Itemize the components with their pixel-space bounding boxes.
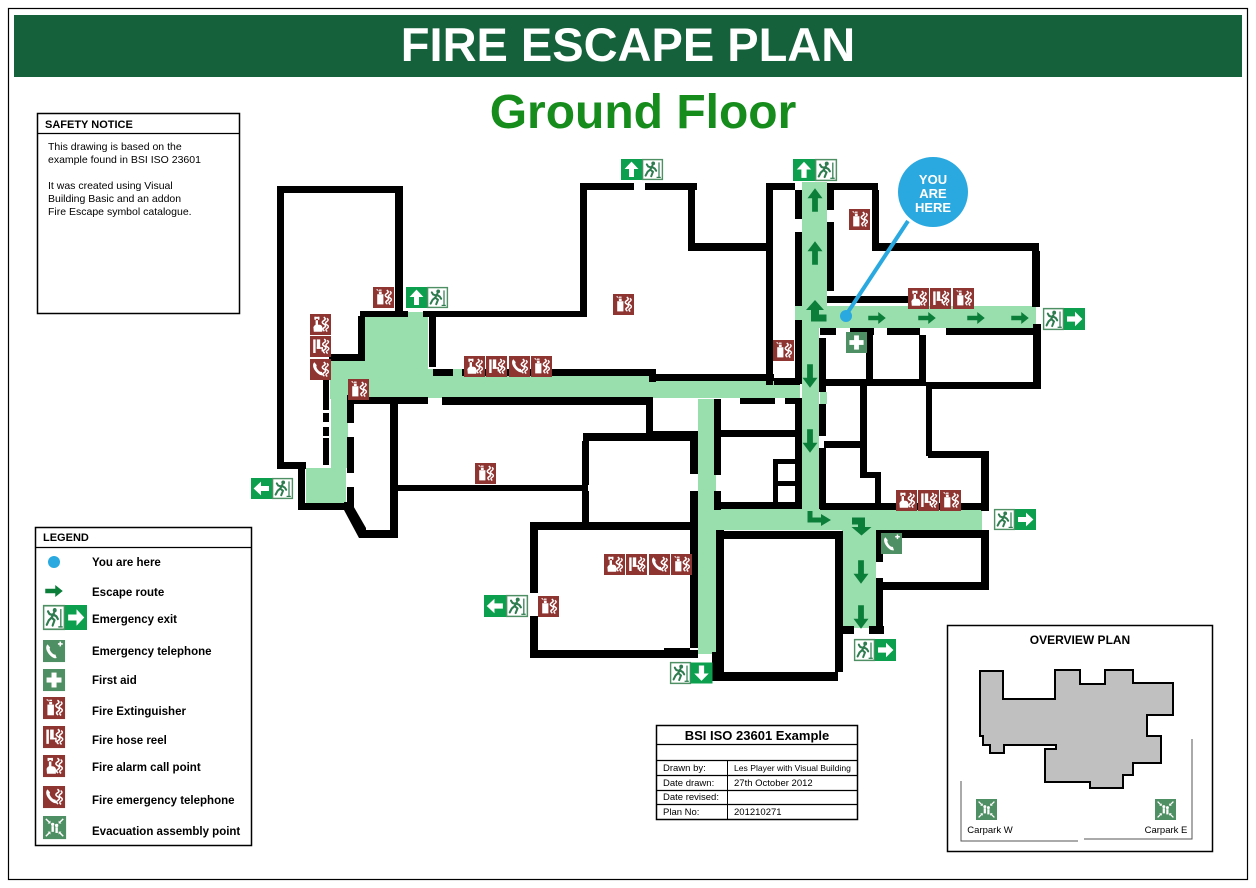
svg-text:YOU: YOU: [919, 172, 947, 187]
svg-text:201210271: 201210271: [734, 807, 782, 818]
svg-text:Drawn by:: Drawn by:: [663, 763, 706, 774]
svg-text:Date drawn:: Date drawn:: [663, 778, 714, 789]
svg-text:You are here: You are here: [92, 557, 161, 569]
svg-text:Fire hose reel: Fire hose reel: [92, 735, 167, 747]
svg-text:Fire alarm call point: Fire alarm call point: [92, 762, 201, 774]
svg-text:LEGEND: LEGEND: [43, 532, 89, 544]
svg-text:OVERVIEW PLAN: OVERVIEW PLAN: [1030, 633, 1130, 647]
svg-text:Plan No:: Plan No:: [663, 807, 699, 818]
svg-text:example found in BSI ISO 23601: example found in BSI ISO 23601: [48, 154, 201, 166]
svg-text:27th October 2012: 27th October 2012: [734, 778, 813, 789]
svg-text:Fire Escape symbol catalogue.: Fire Escape symbol catalogue.: [48, 206, 192, 218]
svg-text:It was created using Visual: It was created using Visual: [48, 180, 173, 192]
svg-text:Date revised:: Date revised:: [663, 792, 719, 803]
svg-text:Evacuation assembly point: Evacuation assembly point: [92, 826, 240, 838]
svg-text:First aid: First aid: [92, 675, 137, 687]
svg-text:Emergency exit: Emergency exit: [92, 614, 177, 626]
svg-text:Carpark W: Carpark W: [967, 825, 1012, 836]
svg-text:BSI ISO 23601 Example: BSI ISO 23601 Example: [685, 728, 830, 743]
svg-text:Fire Extinguisher: Fire Extinguisher: [92, 706, 186, 718]
svg-text:Escape route: Escape route: [92, 587, 164, 599]
svg-text:Fire emergency telephone: Fire emergency telephone: [92, 795, 235, 807]
svg-text:Emergency telephone: Emergency telephone: [92, 646, 212, 658]
svg-text:This drawing is based on the: This drawing is based on the: [48, 141, 182, 153]
svg-text:Les Player with Visual Buildin: Les Player with Visual Building: [734, 763, 851, 773]
svg-text:Building Basic and an addon: Building Basic and an addon: [48, 193, 181, 205]
svg-text:SAFETY NOTICE: SAFETY NOTICE: [45, 119, 133, 131]
svg-text:Carpark E: Carpark E: [1145, 825, 1188, 836]
svg-text:HERE: HERE: [915, 200, 951, 215]
svg-text:ARE: ARE: [919, 186, 947, 201]
svg-text:Ground Floor: Ground Floor: [490, 86, 797, 139]
svg-text:FIRE ESCAPE PLAN: FIRE ESCAPE PLAN: [401, 18, 855, 71]
